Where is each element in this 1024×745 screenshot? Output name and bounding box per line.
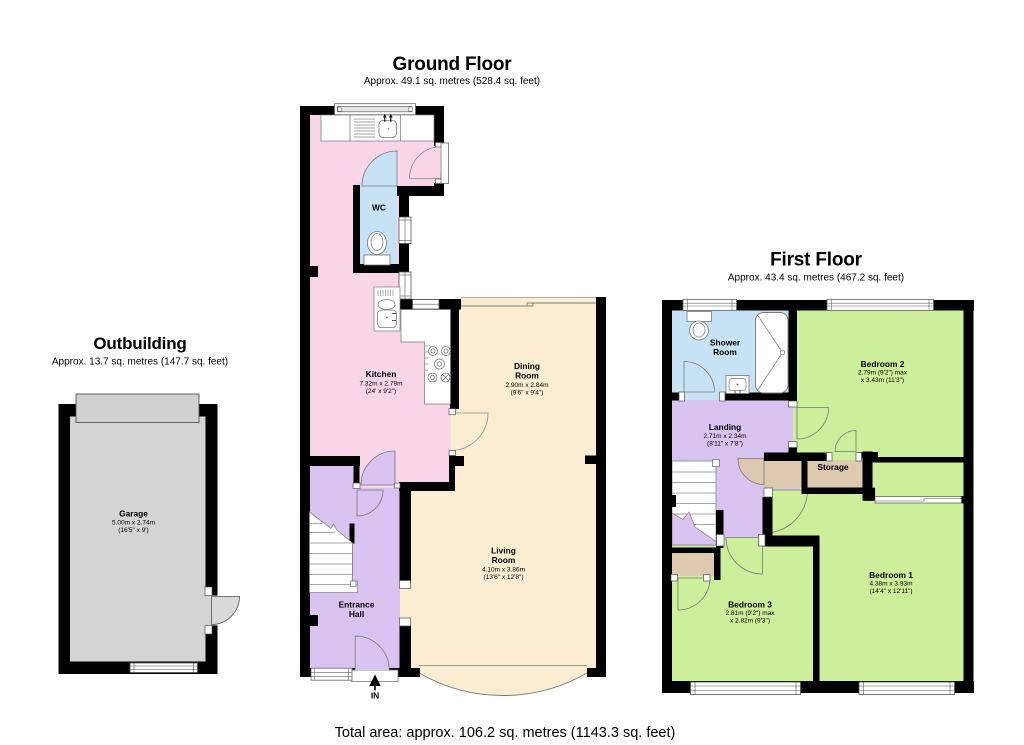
svg-text:2.79m (9'2") max: 2.79m (9'2") max — [858, 370, 908, 377]
svg-text:(8'11" x 7'8"): (8'11" x 7'8") — [707, 441, 743, 448]
svg-text:Total area: approx. 106.2 sq.: Total area: approx. 106.2 sq. metres (11… — [335, 725, 676, 741]
svg-text:Approx. 49.1 sq. metres (528.4: Approx. 49.1 sq. metres (528.4 sq. feet) — [364, 76, 540, 87]
svg-text:(13'6" x 12'8"): (13'6" x 12'8") — [484, 574, 524, 581]
svg-text:(16'5" x 9'): (16'5" x 9') — [118, 527, 148, 534]
svg-text:Ground Floor: Ground Floor — [393, 54, 513, 75]
svg-text:Room: Room — [515, 371, 539, 381]
svg-text:2.71m x 2.34m: 2.71m x 2.34m — [704, 433, 747, 440]
svg-text:Room: Room — [492, 555, 516, 565]
svg-text:Garage: Garage — [119, 509, 148, 519]
svg-text:(24' x 9'2"): (24' x 9'2") — [366, 388, 396, 395]
svg-text:Kitchen: Kitchen — [366, 369, 397, 379]
svg-text:Room: Room — [713, 347, 737, 357]
svg-text:2.81m (9'2") max: 2.81m (9'2") max — [725, 610, 775, 617]
svg-text:x 2.82m (9'3"): x 2.82m (9'3") — [730, 618, 770, 625]
svg-text:Hall: Hall — [349, 609, 364, 619]
svg-text:Bedroom 1: Bedroom 1 — [869, 570, 913, 580]
svg-text:5.00m x 2.74m: 5.00m x 2.74m — [112, 520, 155, 527]
svg-text:WC: WC — [372, 203, 386, 213]
svg-text:Living: Living — [491, 546, 516, 556]
svg-text:Landing: Landing — [709, 422, 742, 432]
svg-text:Storage: Storage — [817, 462, 849, 472]
svg-text:Entrance: Entrance — [339, 600, 375, 610]
svg-text:2.90m x 2.84m: 2.90m x 2.84m — [506, 382, 549, 389]
svg-text:First Floor: First Floor — [770, 250, 863, 271]
svg-text:7.32m x 2.79m: 7.32m x 2.79m — [360, 381, 403, 388]
svg-text:Bedroom 2: Bedroom 2 — [861, 359, 905, 369]
svg-text:4.10m x 3.86m: 4.10m x 3.86m — [482, 567, 525, 574]
svg-text:4.38m x 3.93m: 4.38m x 3.93m — [870, 581, 913, 588]
svg-text:Bedroom 3: Bedroom 3 — [728, 600, 772, 610]
svg-text:(14'4" x 12'11"): (14'4" x 12'11") — [869, 588, 912, 595]
svg-text:(9'6" x 9'4"): (9'6" x 9'4") — [511, 390, 544, 397]
svg-text:Approx. 13.7 sq. metres (147.7: Approx. 13.7 sq. metres (147.7 sq. feet) — [52, 357, 228, 368]
svg-text:Shower: Shower — [710, 338, 741, 348]
svg-text:Dining: Dining — [514, 361, 540, 371]
svg-text:Outbuilding: Outbuilding — [93, 334, 186, 353]
svg-text:IN: IN — [371, 691, 379, 701]
svg-text:x 3.43m (11'3"): x 3.43m (11'3") — [861, 377, 904, 384]
svg-text:Approx. 43.4 sq. metres (467.2: Approx. 43.4 sq. metres (467.2 sq. feet) — [728, 273, 904, 284]
